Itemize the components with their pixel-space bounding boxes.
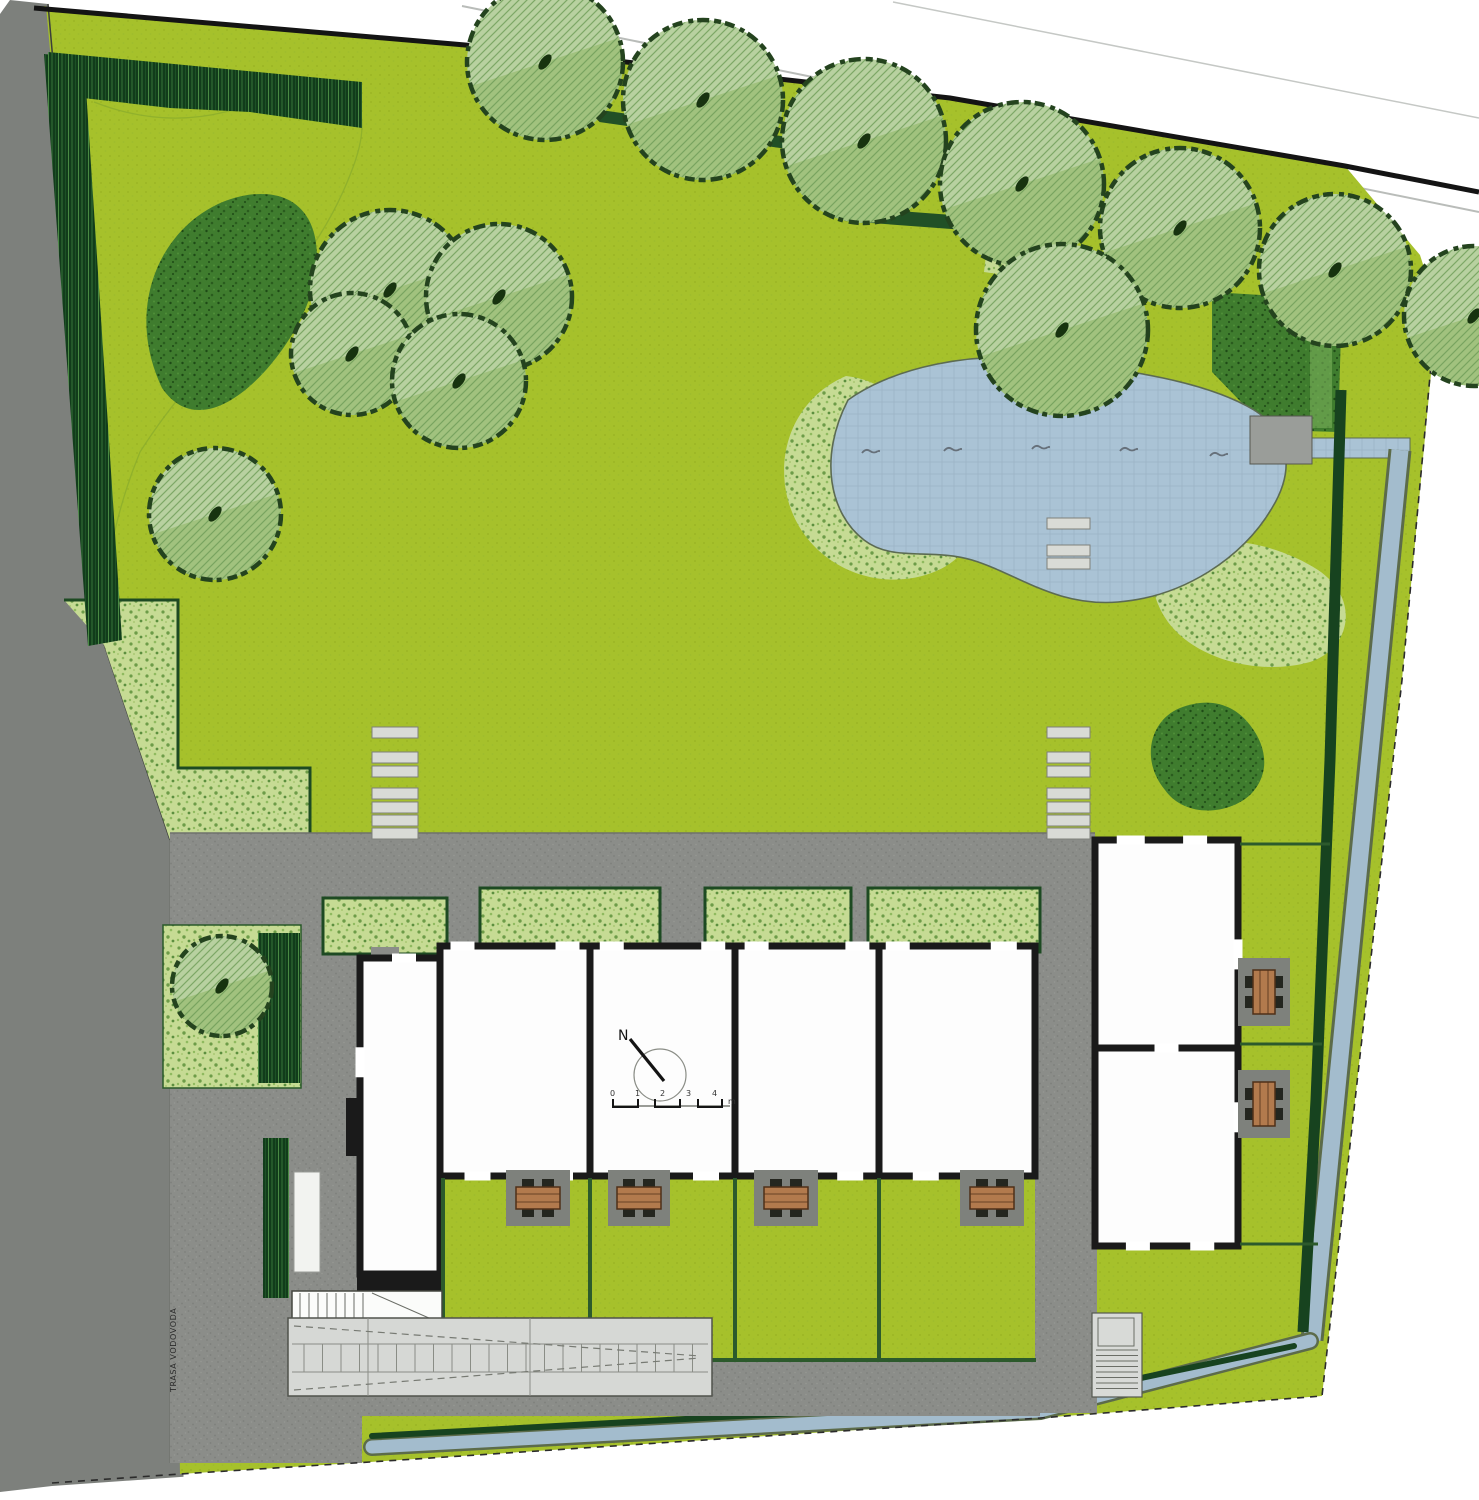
compass-label: N [618,1028,628,1044]
house-c [590,942,735,1181]
scale-bar-tick-label: 0 [610,1089,615,1098]
wall-stub [346,1098,358,1156]
paving-court-mid [1035,950,1097,1413]
scale-bar-unit: m [728,1097,736,1106]
scale-bar-tick-label: 1 [635,1089,640,1098]
house-f [1095,836,1243,1053]
hedge-entry-south [263,1138,289,1298]
scale-bar-tick-label: 4 [712,1089,717,1098]
site-plan-canvas: N01234mTRASA VODOVODA [0,0,1479,1500]
site-plan: N01234mTRASA VODOVODA [0,0,1479,1500]
road-edge-line [893,2,1479,118]
front-garden-strip [323,898,447,959]
annotation-label: TRASA VODOVODA [169,1308,178,1393]
house-b [440,942,590,1181]
house-d [735,942,879,1181]
walkway [294,1172,320,1272]
scale-bar-tick-label: 3 [686,1089,691,1098]
pond-bridge [1250,416,1312,464]
house-g [1095,1044,1243,1251]
house-a [356,954,441,1275]
scale-bar-tick-label: 2 [660,1089,665,1098]
ramp [288,1318,712,1396]
house-e [879,942,1035,1181]
